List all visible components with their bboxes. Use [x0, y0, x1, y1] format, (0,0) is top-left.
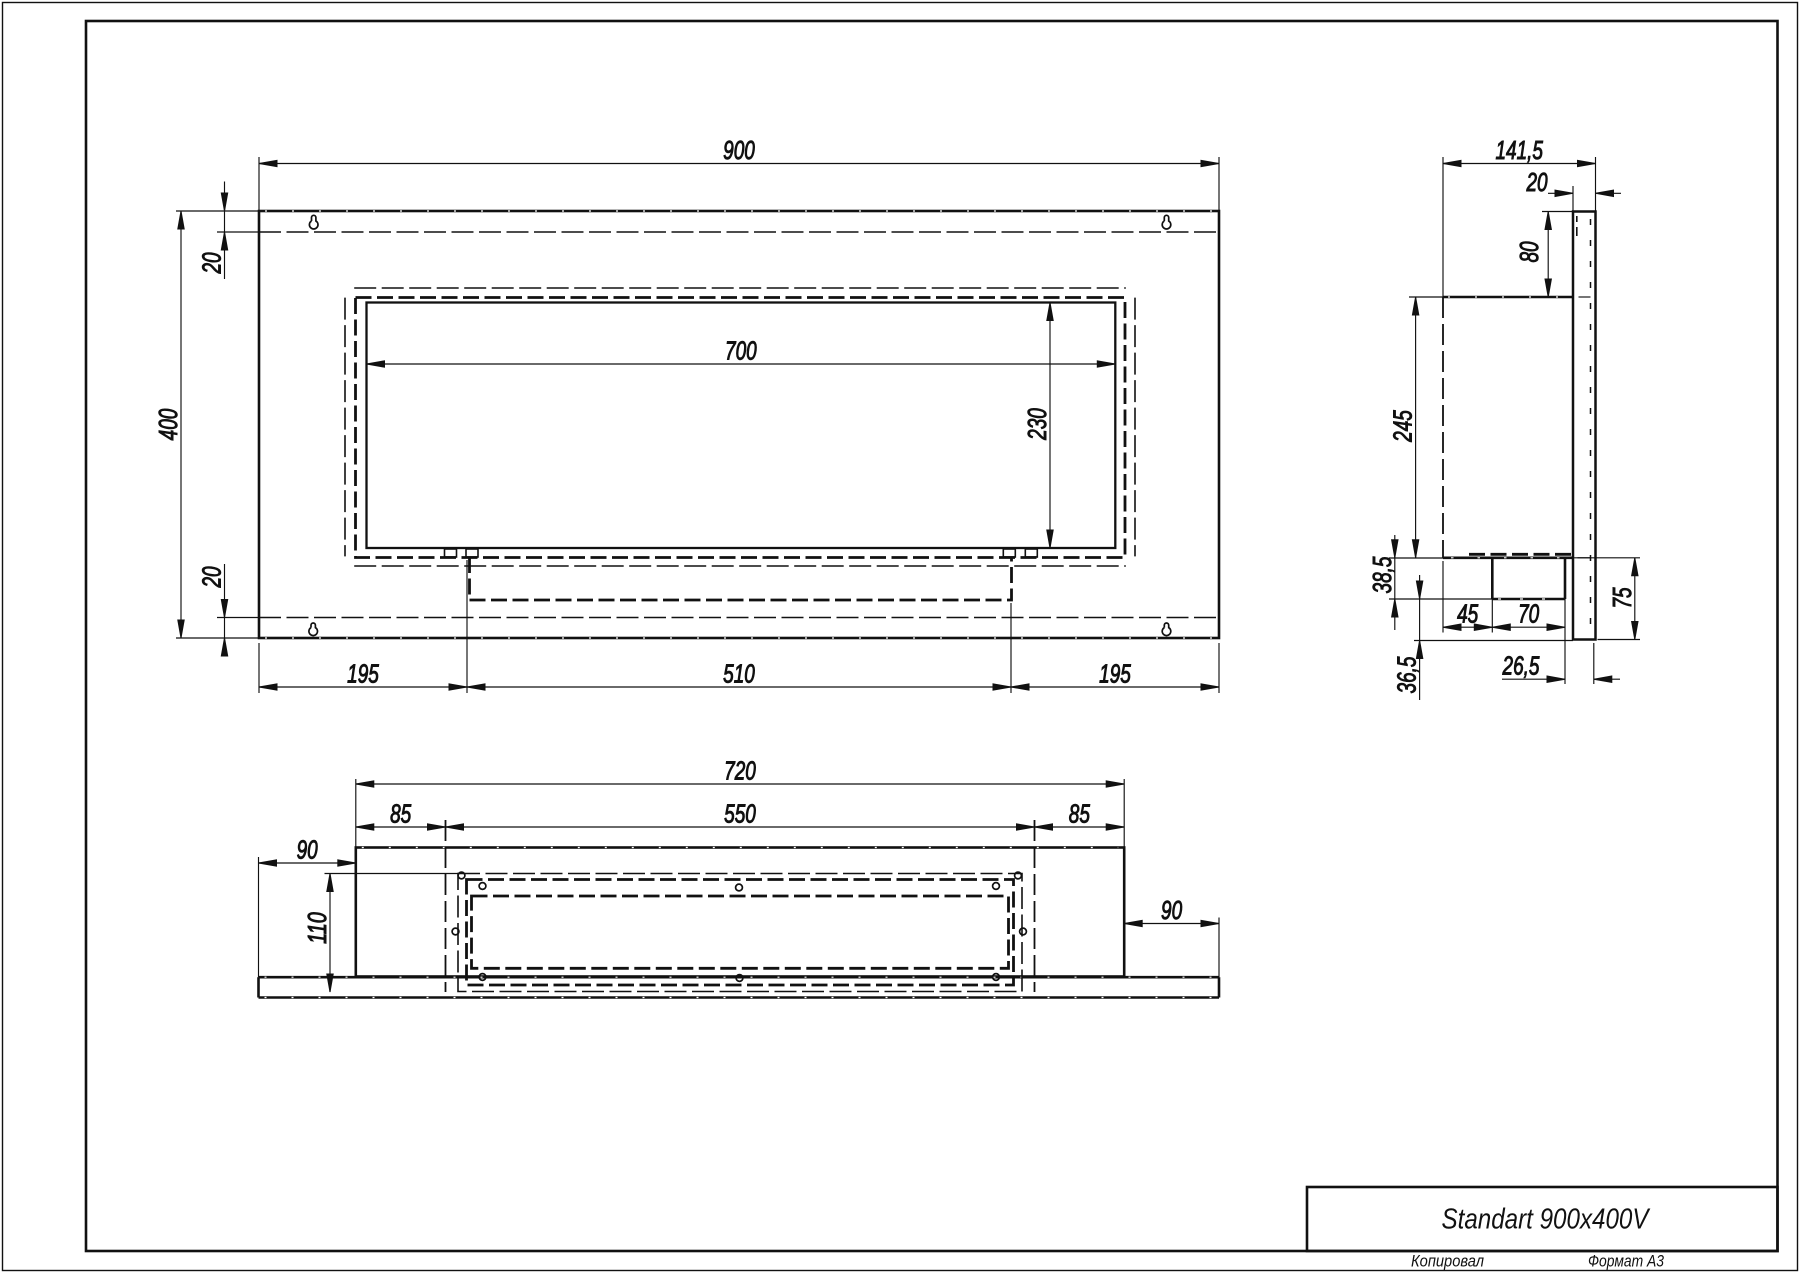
svg-text:245: 245: [1388, 410, 1418, 443]
svg-text:90: 90: [1161, 895, 1182, 925]
svg-text:85: 85: [1069, 799, 1090, 829]
svg-text:20: 20: [197, 252, 227, 274]
svg-text:195: 195: [347, 659, 379, 689]
svg-text:Копировал: Копировал: [1411, 1252, 1484, 1271]
svg-text:400: 400: [153, 408, 183, 440]
svg-text:90: 90: [297, 835, 318, 865]
svg-text:720: 720: [724, 756, 756, 786]
svg-text:141,5: 141,5: [1496, 135, 1544, 165]
svg-text:75: 75: [1607, 587, 1637, 608]
svg-text:550: 550: [724, 799, 756, 829]
svg-text:38,5: 38,5: [1367, 556, 1397, 593]
svg-text:900: 900: [723, 135, 755, 165]
svg-text:110: 110: [302, 912, 332, 944]
svg-text:45: 45: [1457, 599, 1478, 629]
svg-text:36,5: 36,5: [1392, 656, 1422, 693]
svg-text:510: 510: [723, 659, 755, 689]
svg-text:85: 85: [390, 799, 411, 829]
svg-text:20: 20: [1526, 167, 1548, 197]
svg-text:80: 80: [1514, 241, 1544, 262]
svg-text:70: 70: [1518, 599, 1539, 629]
svg-text:230: 230: [1022, 408, 1052, 441]
svg-text:Формат А3: Формат А3: [1588, 1252, 1664, 1271]
svg-text:195: 195: [1099, 659, 1131, 689]
svg-text:Standart 900x400V: Standart 900x400V: [1442, 1204, 1651, 1236]
svg-text:700: 700: [725, 336, 757, 366]
svg-text:20: 20: [197, 566, 227, 588]
svg-text:26,5: 26,5: [1502, 651, 1540, 681]
